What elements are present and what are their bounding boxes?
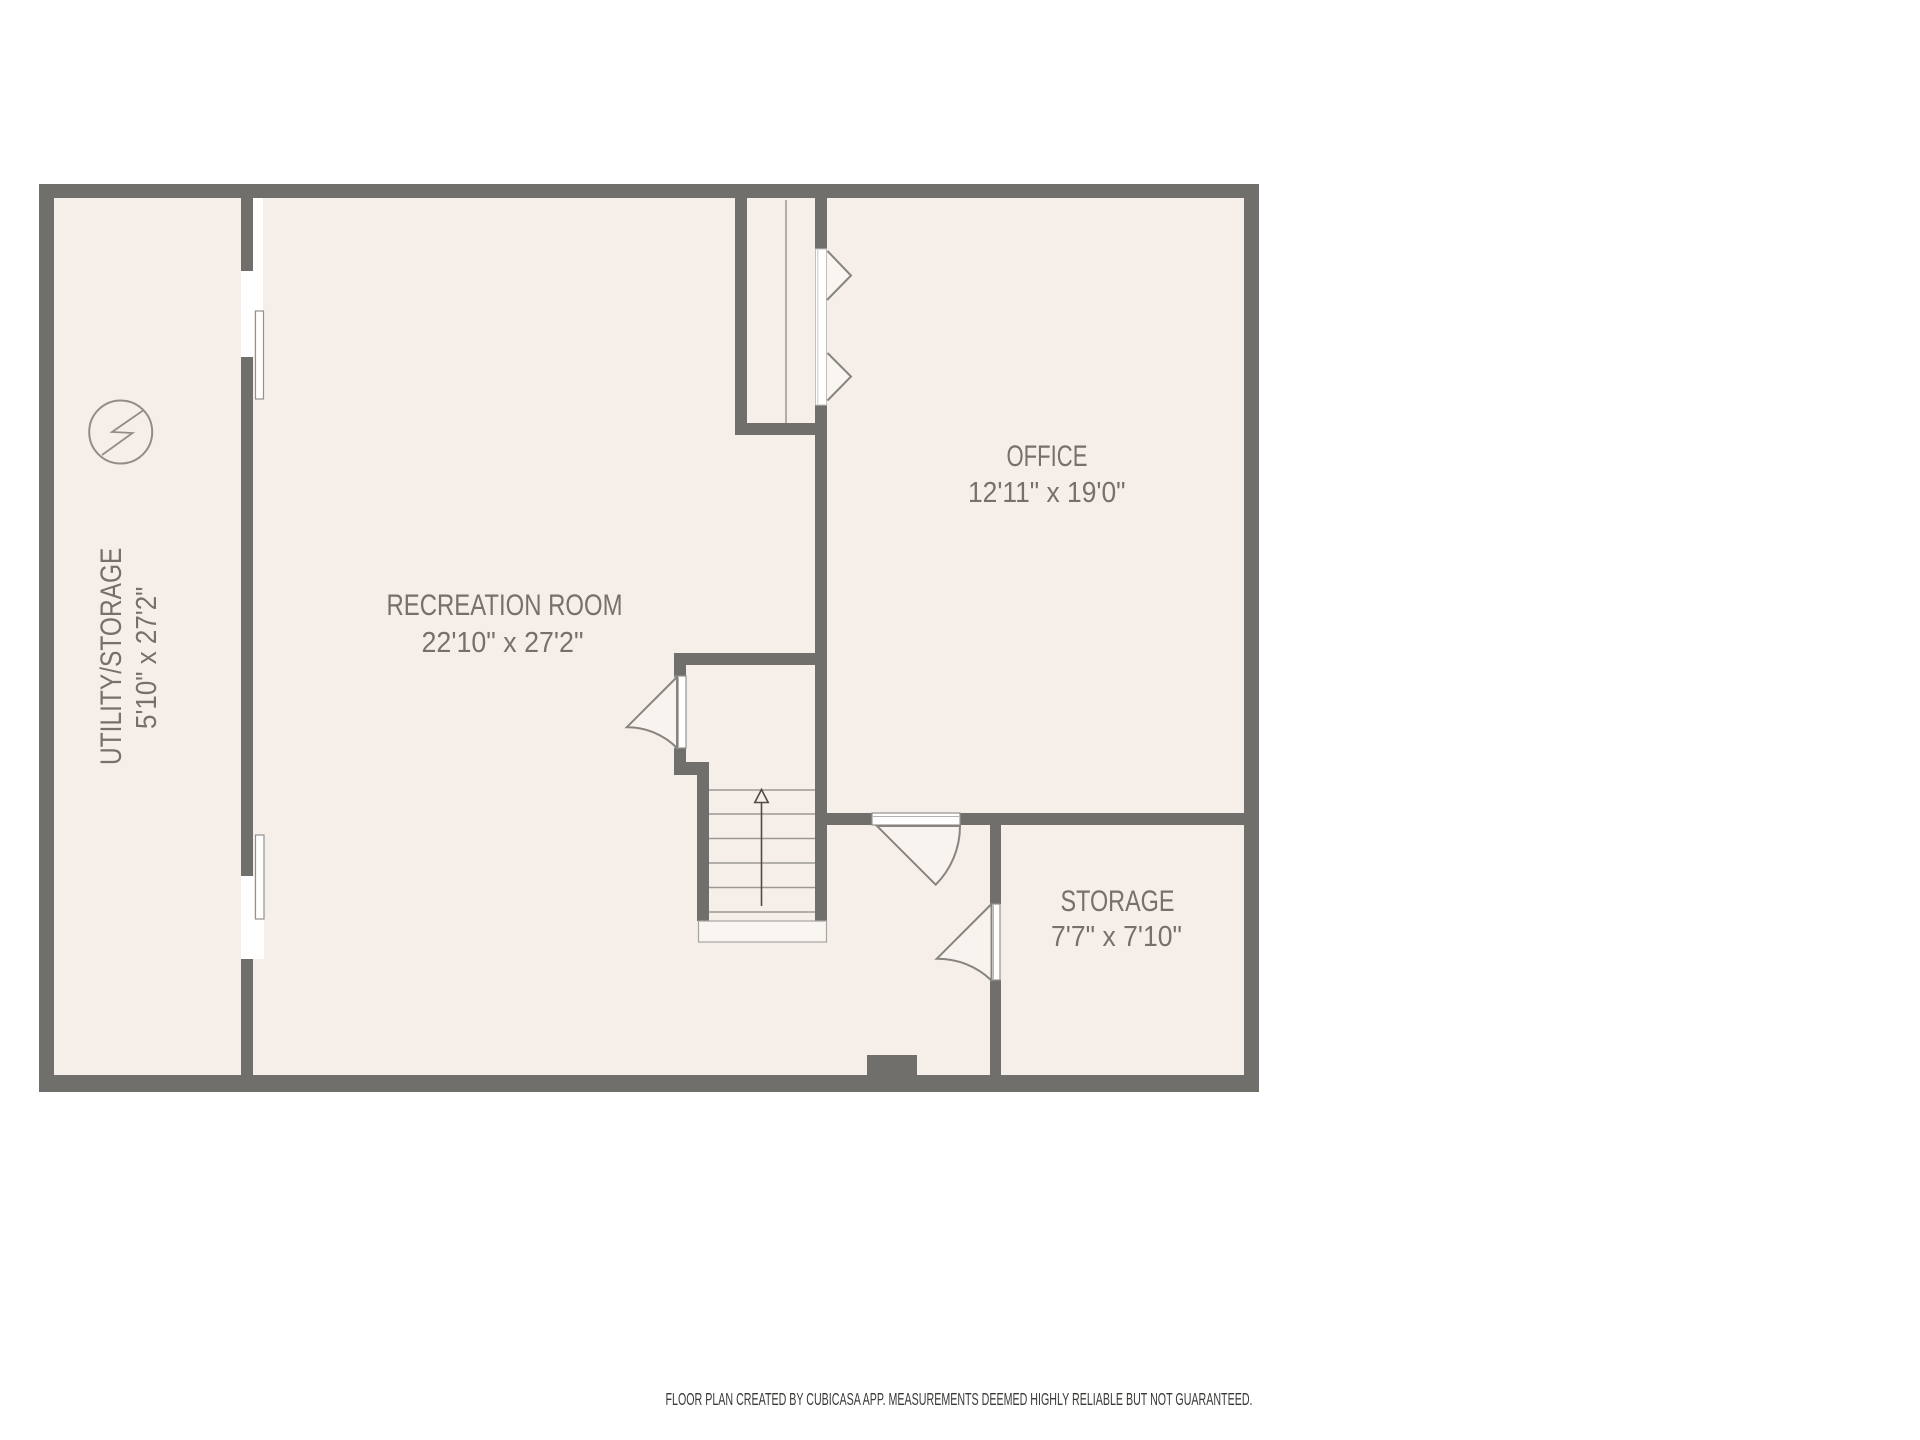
svg-text:12'11" x 19'0": 12'11" x 19'0" — [968, 477, 1126, 509]
svg-text:5'10" x 27'2": 5'10" x 27'2" — [131, 587, 163, 729]
svg-text:22'10" x 27'2": 22'10" x 27'2" — [422, 627, 584, 659]
svg-text:RECREATION ROOM: RECREATION ROOM — [387, 589, 623, 622]
svg-text:STORAGE: STORAGE — [1061, 885, 1175, 918]
svg-text:7'7" x 7'10": 7'7" x 7'10" — [1051, 921, 1182, 953]
svg-text:UTILITY/STORAGE: UTILITY/STORAGE — [95, 548, 128, 765]
svg-text:FLOOR PLAN CREATED BY CUBICASA: FLOOR PLAN CREATED BY CUBICASA APP. MEAS… — [666, 1389, 1253, 1409]
svg-text:OFFICE: OFFICE — [1007, 440, 1088, 473]
